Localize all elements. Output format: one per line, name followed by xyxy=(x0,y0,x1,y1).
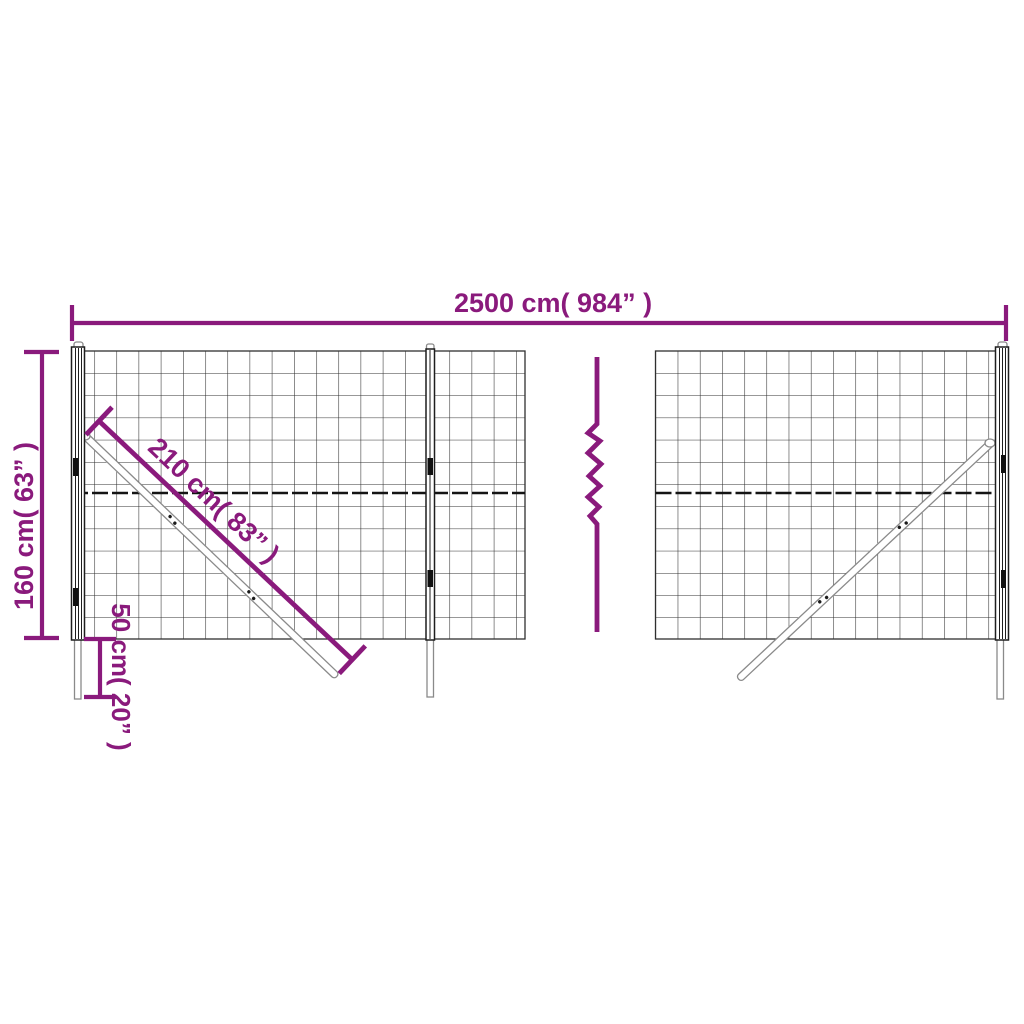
mesh-panel-left xyxy=(72,351,525,639)
ground-spike-right xyxy=(997,639,1004,699)
post-left xyxy=(72,342,85,640)
ground-spike-left xyxy=(75,639,82,699)
fence-dimension-diagram: 2500 cm( 984” ) 160 cm( 63” ) 210 cm( 83… xyxy=(0,0,1024,1024)
post-middle-clip-1 xyxy=(428,458,434,475)
post-right-clip-2 xyxy=(1001,570,1006,588)
diagram-svg: 2500 cm( 984” ) 160 cm( 63” ) 210 cm( 83… xyxy=(0,0,1024,1024)
post-right xyxy=(996,342,1009,640)
ground-spike-middle xyxy=(427,639,434,697)
post-right-clip-1 xyxy=(1001,455,1006,473)
height-dimension-label: 160 cm( 63” ) xyxy=(9,442,39,610)
post-middle-clip-2 xyxy=(428,570,434,587)
post-left-clip-2 xyxy=(73,588,78,606)
ground-depth-label: 50 cm( 20” ) xyxy=(106,603,136,750)
post-left-clip-1 xyxy=(73,458,78,476)
brace-right-bracket xyxy=(985,439,995,447)
width-dimension-label: 2500 cm( 984” ) xyxy=(454,288,652,318)
post-middle xyxy=(426,344,435,640)
